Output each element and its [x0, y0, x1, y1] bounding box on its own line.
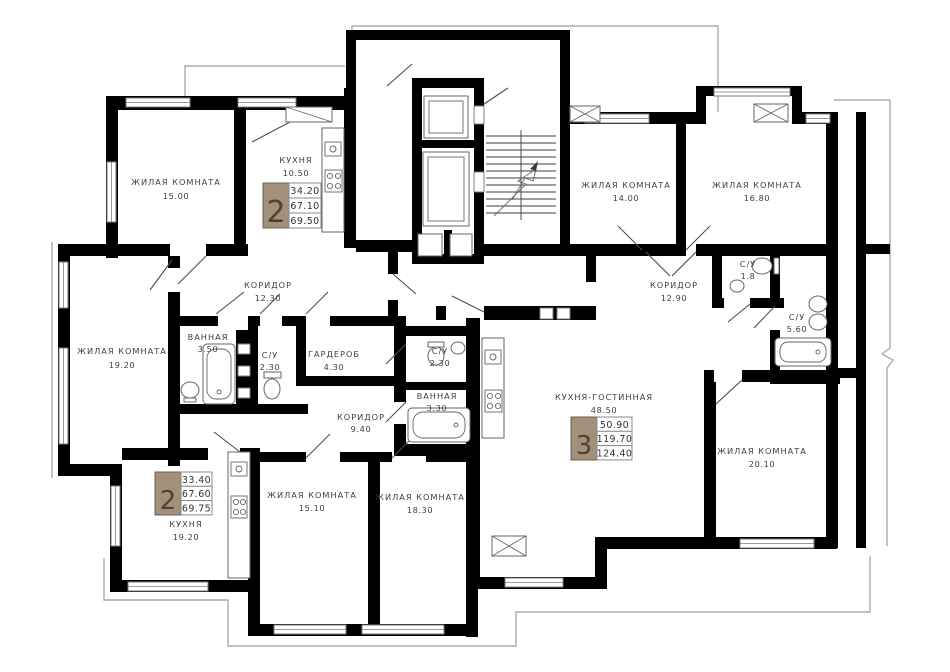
- kitchen-counter: [322, 128, 344, 232]
- bathtub-icon: [775, 338, 831, 366]
- room-label-wc-2-30: С/У2.30: [260, 350, 281, 372]
- svg-text:2: 2: [266, 195, 285, 230]
- svg-text:124.40: 124.40: [597, 449, 633, 460]
- double-sink-icon: [809, 296, 827, 330]
- room-label-living-16-80: ЖИЛАЯ КОМНАТА16.80: [712, 180, 802, 203]
- svg-text:10.50: 10.50: [283, 168, 309, 178]
- svg-text:3.30: 3.30: [427, 403, 448, 413]
- svg-text:ЖИЛАЯ КОМНАТА: ЖИЛАЯ КОМНАТА: [267, 490, 357, 500]
- room-label-wardrobe-4-30: ГАРДЕРОБ4.30: [308, 349, 360, 372]
- room-label-wc-5-60: С/У5.60: [787, 312, 808, 334]
- svg-text:4.30: 4.30: [324, 362, 345, 372]
- svg-text:34.20: 34.20: [290, 186, 319, 197]
- svg-text:1.8: 1.8: [741, 271, 756, 281]
- apartment-badge-3: 3 50.90 119.70 124.40: [571, 417, 632, 461]
- appliance-box: [570, 106, 600, 122]
- svg-text:2.30: 2.30: [430, 358, 451, 368]
- svg-text:КУХНЯ: КУХНЯ: [279, 155, 312, 165]
- svg-text:ЖИЛАЯ КОМНАТА: ЖИЛАЯ КОМНАТА: [717, 446, 807, 456]
- svg-text:19.20: 19.20: [109, 360, 135, 370]
- appliance-box: [286, 107, 332, 122]
- svg-text:15.00: 15.00: [163, 191, 189, 201]
- svg-text:ЖИЛАЯ КОМНАТА: ЖИЛАЯ КОМНАТА: [581, 180, 671, 190]
- svg-text:48.50: 48.50: [591, 405, 617, 415]
- svg-text:ЖИЛАЯ КОМНАТА: ЖИЛАЯ КОМНАТА: [375, 492, 465, 502]
- bathtub-icon: [408, 408, 470, 442]
- svg-text:КУХНЯ-ГОСТИННАЯ: КУХНЯ-ГОСТИННАЯ: [555, 392, 653, 402]
- apartment-badge-2: 2 33.40 67.60 69.75: [155, 472, 212, 516]
- svg-text:С/У: С/У: [740, 259, 756, 269]
- room-label-kitchen-living-48-50: КУХНЯ-ГОСТИННАЯ48.50: [555, 392, 653, 415]
- svg-text:15.10: 15.10: [299, 503, 325, 513]
- svg-text:2: 2: [160, 486, 177, 516]
- svg-text:2.30: 2.30: [260, 362, 281, 372]
- room-label-corridor-12-30: КОРИДОР12.30: [244, 280, 292, 303]
- room-label-corridor-9-40: КОРИДОР9.40: [337, 412, 385, 434]
- svg-text:12.30: 12.30: [255, 293, 281, 303]
- room-label-living-19-20: ЖИЛАЯ КОМНАТА19.20: [77, 346, 167, 370]
- svg-text:69.50: 69.50: [290, 216, 319, 227]
- svg-text:67.60: 67.60: [182, 489, 211, 500]
- sink-icon: [730, 280, 744, 292]
- sink-icon: [451, 342, 465, 354]
- sink-icon: [181, 382, 199, 402]
- svg-text:14.00: 14.00: [613, 193, 639, 203]
- svg-text:18.30: 18.30: [407, 505, 433, 515]
- room-label-living-15-00: ЖИЛАЯ КОМНАТА15.00: [131, 177, 221, 201]
- svg-text:ВАННАЯ: ВАННАЯ: [417, 391, 458, 401]
- svg-text:КОРИДОР: КОРИДОР: [337, 412, 385, 422]
- svg-text:5.60: 5.60: [787, 324, 808, 334]
- svg-text:9.40: 9.40: [351, 424, 372, 434]
- duct-shaft: [236, 330, 252, 404]
- appliance-box: [492, 536, 526, 556]
- svg-text:ВАННАЯ: ВАННАЯ: [188, 332, 229, 342]
- svg-text:С/У: С/У: [262, 350, 278, 360]
- svg-text:3: 3: [576, 431, 593, 461]
- room-label-kitchen-19-20: КУХНЯ19.20: [169, 519, 202, 542]
- svg-text:19.20: 19.20: [173, 532, 199, 542]
- room-label-living-20-10: ЖИЛАЯ КОМНАТА20.10: [717, 446, 807, 469]
- room-label-living-14-00: ЖИЛАЯ КОМНАТА14.00: [581, 180, 671, 203]
- svg-text:ЖИЛАЯ КОМНАТА: ЖИЛАЯ КОМНАТА: [77, 346, 167, 356]
- toilet-icon: [264, 372, 281, 399]
- svg-text:69.75: 69.75: [182, 504, 211, 515]
- svg-text:12.90: 12.90: [661, 293, 687, 303]
- svg-text:ЖИЛАЯ КОМНАТА: ЖИЛАЯ КОМНАТА: [712, 180, 802, 190]
- svg-text:67.10: 67.10: [290, 201, 319, 212]
- svg-text:КОРИДОР: КОРИДОР: [650, 280, 698, 290]
- apartment-badge-1: 2 34.20 67.10 69.50: [263, 183, 321, 230]
- kitchen-counter: [482, 338, 504, 438]
- appliance-box: [754, 104, 788, 122]
- room-label-living-18-30: ЖИЛАЯ КОМНАТА18.30: [375, 492, 465, 515]
- svg-text:С/У: С/У: [432, 346, 448, 356]
- room-label-living-15-10: ЖИЛАЯ КОМНАТА15.10: [267, 490, 357, 513]
- svg-text:ГАРДЕРОБ: ГАРДЕРОБ: [308, 349, 360, 359]
- kitchen-counter: [228, 452, 250, 578]
- room-label-corridor-12-90: КОРИДОР12.90: [650, 280, 698, 303]
- floor-plan-page: ЖИЛАЯ КОМНАТА15.00 КУХНЯ10.50 КОРИДОР12.…: [0, 0, 950, 672]
- svg-text:20.10: 20.10: [749, 459, 775, 469]
- floor-plan: ЖИЛАЯ КОМНАТА15.00 КУХНЯ10.50 КОРИДОР12.…: [0, 0, 950, 672]
- svg-text:ЖИЛАЯ КОМНАТА: ЖИЛАЯ КОМНАТА: [131, 177, 221, 187]
- room-label-kitchen-10-50: КУХНЯ10.50: [279, 155, 312, 178]
- svg-text:16.80: 16.80: [744, 193, 770, 203]
- svg-text:50.90: 50.90: [600, 420, 629, 431]
- svg-text:3.50: 3.50: [198, 344, 219, 354]
- svg-text:КУХНЯ: КУХНЯ: [169, 519, 202, 529]
- svg-text:С/У: С/У: [789, 312, 805, 322]
- svg-text:33.40: 33.40: [182, 475, 211, 486]
- svg-text:КОРИДОР: КОРИДОР: [244, 280, 292, 290]
- svg-text:119.70: 119.70: [597, 434, 633, 445]
- staircase: [486, 130, 556, 220]
